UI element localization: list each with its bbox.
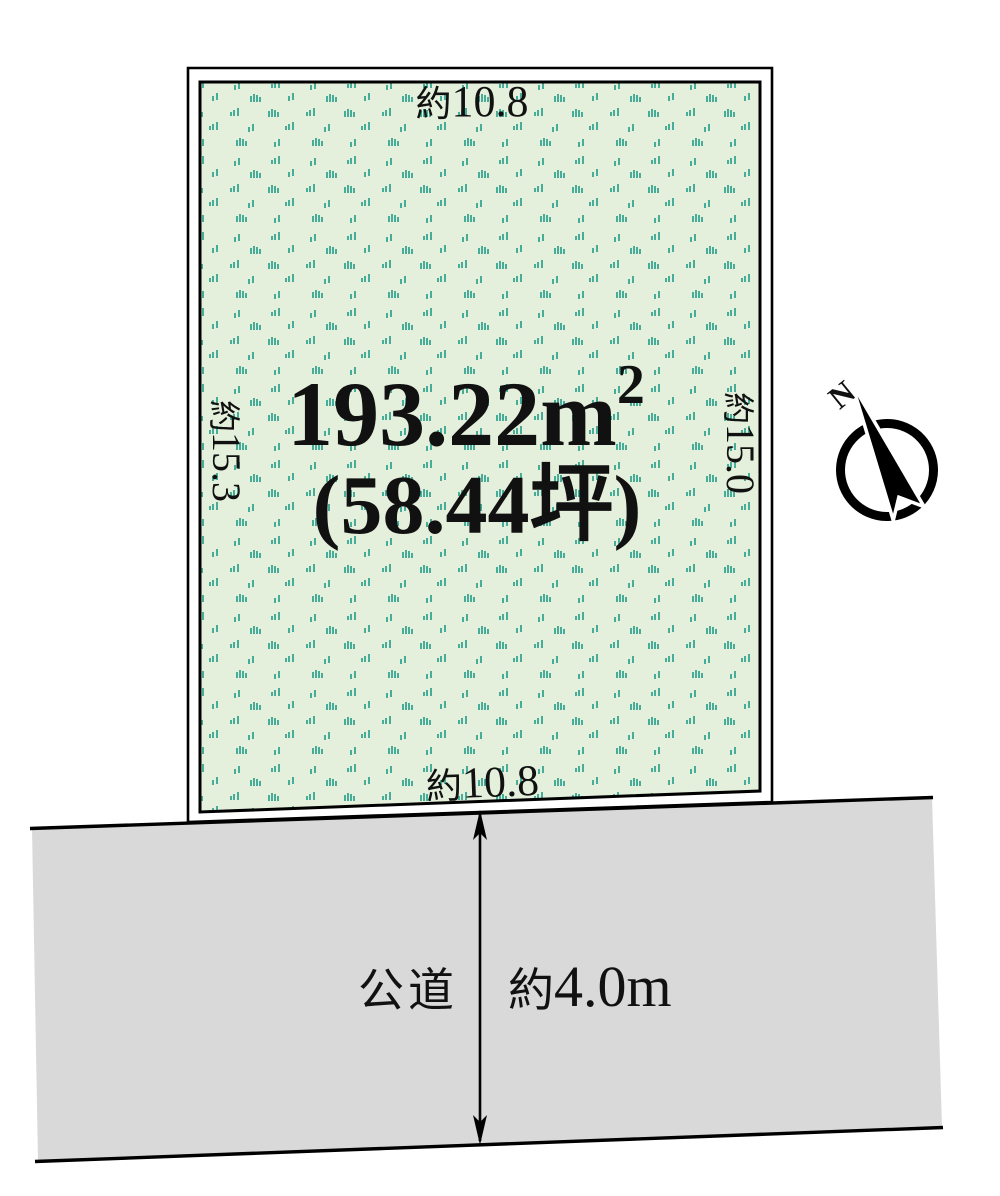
area-label: 193.22m2 (58.44坪) (287, 354, 645, 552)
dimension-label-left: 約15.3 (204, 400, 249, 502)
area-tsubo: (58.44坪) (313, 459, 642, 552)
diagram-canvas: 約10.8 約10.8 約15.3 約15.0 193.22m2 (58.44坪… (0, 0, 1000, 1196)
dimension-label-top: 約10.8 (415, 77, 528, 126)
area-square-meters: 193.22m2 (287, 354, 645, 465)
north-label: N (821, 373, 862, 416)
road (30, 797, 943, 1162)
road-name-label: 公道 (358, 965, 458, 1016)
dimension-label-right: 約15.0 (718, 392, 763, 494)
land-plot-diagram: 約10.8 約10.8 約15.3 約15.0 193.22m2 (58.44坪… (0, 0, 1000, 1196)
compass-icon: N (805, 353, 947, 530)
road-surface (32, 797, 942, 1162)
